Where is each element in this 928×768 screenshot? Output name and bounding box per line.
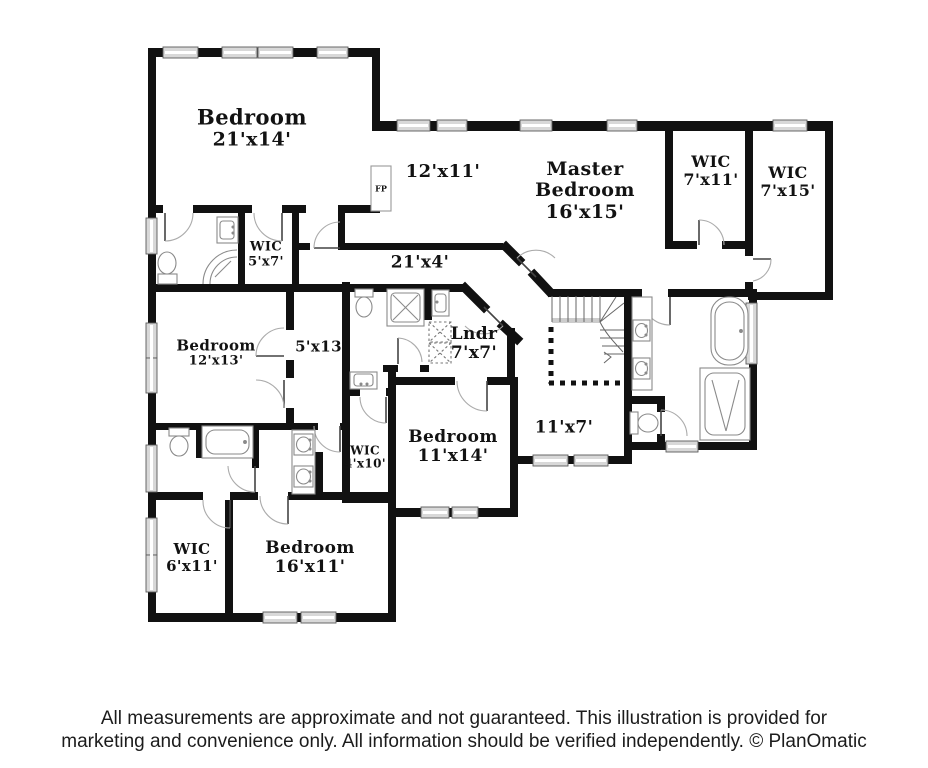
room-label-bedroom-11x14: Bedroom 11'x14' bbox=[408, 428, 498, 466]
toilet bbox=[630, 412, 658, 434]
sink-vanity bbox=[217, 217, 238, 243]
disclaimer-line-2: marketing and convenience only. All info… bbox=[0, 730, 928, 753]
room-label-12x11: 12'x11' bbox=[406, 162, 481, 182]
disclaimer-line-1: All measurements are approximate and not… bbox=[0, 707, 928, 730]
shower bbox=[387, 289, 424, 326]
room-label-hall-21x4: 21'x4' bbox=[391, 253, 449, 272]
room-label-wic-6x11: WIC 6'x11' bbox=[166, 541, 218, 575]
room-label-laundry: Lndr 7'x7' bbox=[451, 325, 498, 363]
washer-dryer bbox=[429, 322, 451, 363]
room-label-wic-7x11: WIC 7'x11' bbox=[683, 153, 738, 189]
room-label-wic-4x10: WIC 4'x10' bbox=[344, 445, 386, 472]
shower bbox=[700, 368, 750, 440]
stairs bbox=[552, 296, 624, 363]
room-label-wic-7x15: WIC 7'x15' bbox=[760, 164, 815, 200]
room-label-bedroom-12x13: Bedroom 12'x13' bbox=[176, 337, 255, 368]
stairs-open-dotted bbox=[549, 327, 630, 384]
room-label-bedroom-21x14: Bedroom 21'x14' bbox=[197, 106, 307, 151]
toilet bbox=[158, 252, 177, 284]
corner-shower bbox=[203, 250, 237, 284]
toilet bbox=[169, 428, 189, 456]
double-sink-vanity bbox=[292, 430, 315, 494]
utility-sink bbox=[432, 290, 449, 316]
room-label-hall-11x7: 11'x7' bbox=[535, 418, 593, 437]
fireplace-label: FP bbox=[375, 185, 387, 194]
bathtub bbox=[202, 426, 253, 458]
room-label-wic-5x7: WIC 5'x7' bbox=[248, 240, 284, 269]
room-label-hall-5x13: 5'x13' bbox=[295, 339, 347, 356]
double-sink-vanity bbox=[632, 297, 652, 390]
freestanding-bathtub bbox=[711, 297, 748, 365]
sink-vanity bbox=[350, 372, 377, 389]
room-label-bedroom-16x11: Bedroom 16'x11' bbox=[265, 539, 355, 577]
toilet bbox=[355, 289, 373, 317]
floor-plan-page: Bedroom 21'x14' 12'x11' Master Bedroom 1… bbox=[0, 0, 928, 768]
floor-plan-drawing bbox=[0, 0, 928, 768]
room-label-master-bedroom: Master Bedroom 16'x15' bbox=[535, 159, 635, 223]
